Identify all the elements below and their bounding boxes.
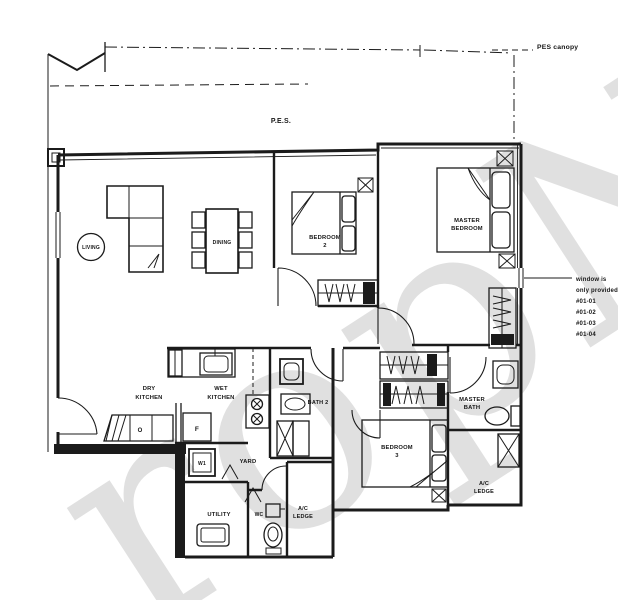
sofa: [107, 186, 163, 272]
label-wet-kitchen-1: WET: [214, 386, 228, 392]
label-master-bath-2: BATH: [464, 405, 480, 411]
watermark-text: ropNex: [0, 0, 618, 600]
label-fridge: F: [195, 426, 199, 433]
floorplan-svg: ropNex: [0, 0, 618, 600]
note-line-6: #01-04: [576, 332, 596, 338]
label-ac-ledge-center-2: LEDGE: [293, 514, 313, 520]
note-line-1: window is: [575, 277, 607, 283]
label-master-bedroom-2: BEDROOM: [451, 226, 483, 232]
label-yard: YARD: [240, 459, 257, 465]
label-dining: DINING: [213, 240, 232, 246]
label-bedroom2-num: 2: [323, 243, 326, 249]
label-master-bedroom-1: MASTER: [454, 218, 480, 224]
label-dry-kitchen-2: KITCHEN: [135, 395, 162, 401]
note-line-4: #01-02: [576, 310, 596, 316]
label-wc: WC: [255, 512, 264, 518]
label-bedroom3-2: 3: [395, 453, 399, 459]
label-living: LIVING: [82, 245, 100, 251]
label-master-bath-1: MASTER: [459, 397, 485, 403]
note-line-5: #01-03: [576, 321, 596, 327]
label-ac-ledge-center-1: A/C: [298, 506, 308, 512]
label-wet-kitchen-2: KITCHEN: [207, 395, 234, 401]
label-bedroom2: BEDROOM: [309, 235, 341, 241]
label-washer: W1: [198, 461, 206, 467]
label-oven: O: [138, 428, 143, 434]
label-bedroom3-1: BEDROOM: [381, 445, 413, 451]
label-utility: UTILITY: [207, 512, 230, 518]
note-line-3: #01-01: [576, 299, 596, 305]
column: [48, 149, 64, 166]
label-dry-kitchen-1: DRY: [143, 386, 156, 392]
label-ac-ledge-right-1: A/C: [479, 481, 489, 487]
note-line-2: only provided: [576, 288, 618, 294]
label-pes: P.E.S.: [271, 118, 291, 125]
label-ac-ledge-right-2: LEDGE: [474, 489, 494, 495]
label-bath2: BATH 2: [308, 400, 329, 406]
label-pes-canopy: PES canopy: [537, 44, 578, 51]
